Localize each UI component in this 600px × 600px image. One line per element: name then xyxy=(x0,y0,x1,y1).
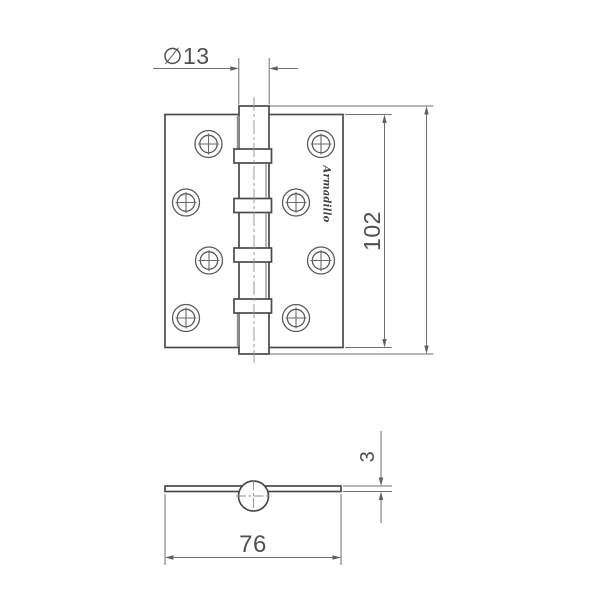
hinge-technical-drawing: Armadillo ∅13 102 xyxy=(0,0,600,600)
dim-label-height: 102 xyxy=(359,211,385,251)
screw-hole xyxy=(196,247,223,274)
bearing-ring xyxy=(234,248,272,262)
dim-knuckle-diameter: ∅13 xyxy=(153,43,298,105)
arrowhead-icon xyxy=(269,66,278,70)
leaf-edge-shade-top xyxy=(237,116,240,149)
side-view xyxy=(165,481,341,512)
screw-hole xyxy=(195,131,222,158)
arrowhead-icon xyxy=(379,492,383,501)
arrowhead-icon xyxy=(424,346,428,355)
bearing-ring xyxy=(234,199,272,213)
arrowhead-icon xyxy=(382,115,386,124)
bearing-ring xyxy=(234,149,272,163)
screw-hole xyxy=(308,131,335,158)
dim-label-diameter: ∅13 xyxy=(162,43,209,69)
arrowhead-icon xyxy=(382,339,386,348)
screw-hole xyxy=(173,305,200,332)
arrowhead-icon xyxy=(165,555,174,559)
screw-hole xyxy=(308,247,335,274)
front-view: Armadillo xyxy=(165,97,343,363)
arrowhead-icon xyxy=(424,106,428,115)
dim-label-thickness: 3 xyxy=(357,451,379,463)
screw-hole xyxy=(173,189,200,216)
leaf-edge-shade-bottom xyxy=(237,314,240,347)
dim-leaf-thickness: 3 xyxy=(343,431,392,523)
bearing-ring xyxy=(234,299,272,313)
dim-label-width: 76 xyxy=(239,531,267,558)
screw-hole xyxy=(283,189,310,216)
dim-leaf-height: 102 xyxy=(345,115,392,348)
brand-logo-text: Armadillo xyxy=(321,165,332,223)
arrowhead-icon xyxy=(379,478,383,487)
drawing-canvas: Armadillo ∅13 102 xyxy=(0,0,600,600)
screw-hole xyxy=(283,305,310,332)
arrowhead-icon xyxy=(230,66,239,70)
arrowhead-icon xyxy=(333,555,342,559)
